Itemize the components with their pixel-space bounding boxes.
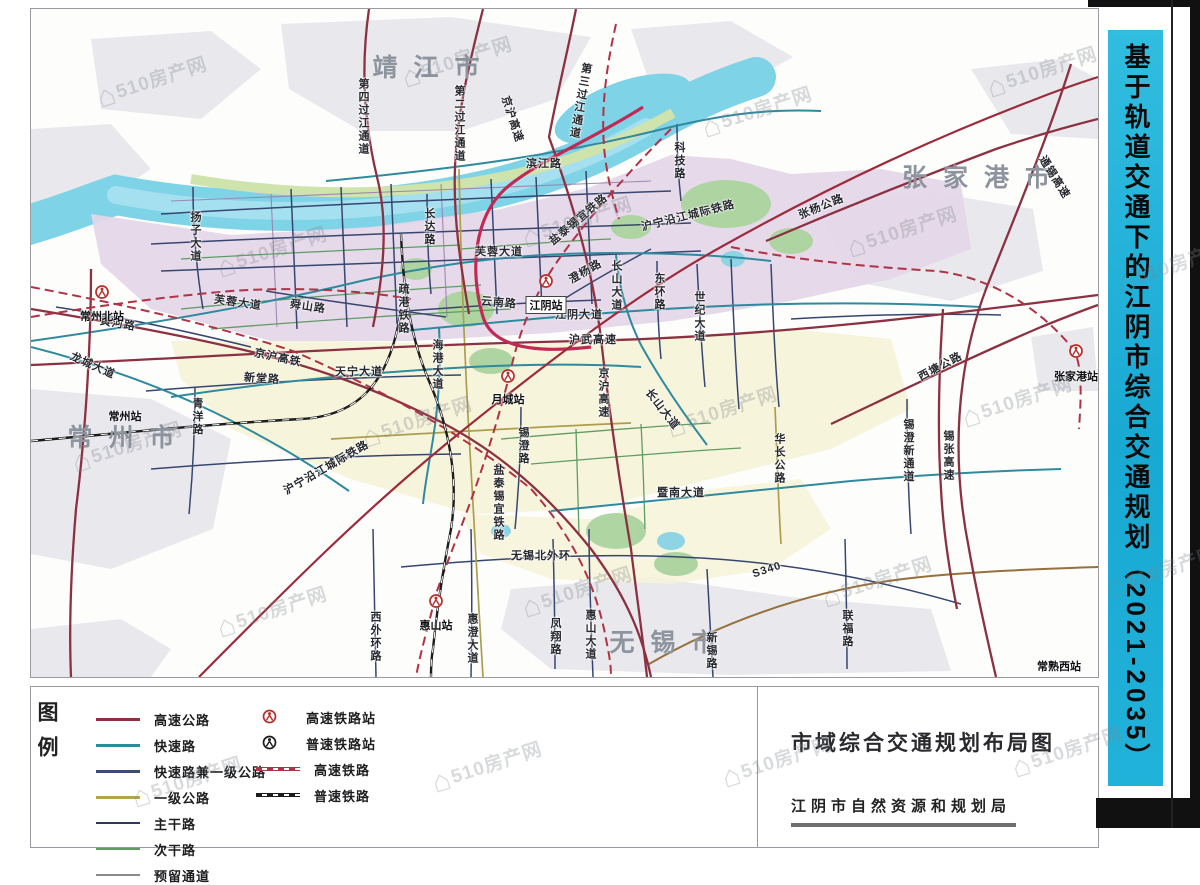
legend-item-label: 普速铁路站	[306, 734, 376, 753]
info-panel-agency: 江阴市自然资源和规划局	[791, 795, 1011, 816]
regular-rail-line-sample	[256, 793, 300, 797]
legend-line-sample	[96, 718, 140, 721]
legend-line-sample	[96, 796, 140, 799]
legend-road-item: 高速公路	[96, 711, 210, 727]
panel-divider	[757, 687, 758, 847]
legend-item-label: 快速路兼一级公路	[154, 762, 266, 781]
document-title: 基于轨道交通下的江阴市综合交通规划（2021-2035）	[1108, 43, 1163, 773]
legend-road-item: 一级公路	[96, 789, 210, 805]
legend-road-item: 预留通道	[96, 867, 210, 883]
bottom-panel: 图例 高速公路快速路快速路兼一级公路一级公路主干路次干路预留通道 高速铁路站普速…	[30, 686, 1099, 848]
legend-rail-item: 高速铁路	[256, 761, 370, 777]
legend-item-label: 快速路	[154, 736, 196, 755]
legend-item-label: 一级公路	[154, 788, 210, 807]
legend-rail-item: 普速铁路站	[256, 735, 376, 751]
legend-road-item: 快速路兼一级公路	[96, 763, 266, 779]
map-canvas: 靖江市张家港市常州市无锡市第四过江通道第二过江通道京沪高速第三过江通道滨江路科技…	[30, 8, 1099, 678]
legend-road-item: 主干路	[96, 815, 196, 831]
legend-item-label: 次干路	[154, 840, 196, 859]
map-artwork	[31, 9, 1098, 677]
legend-rail-item: 高速铁路站	[256, 709, 376, 725]
legend-line-sample	[96, 874, 140, 876]
rail-dash-pattern	[256, 768, 300, 770]
scan-edge-top	[1088, 0, 1200, 7]
legend-title: 图例	[49, 701, 75, 771]
scan-edge-corner	[1096, 798, 1200, 828]
legend-road-item: 次干路	[96, 841, 196, 857]
legend-road-item: 快速路	[96, 737, 196, 753]
legend-line-sample	[96, 744, 140, 747]
info-panel-title: 市域综合交通规划布局图	[791, 727, 1055, 757]
regular-rail-station-icon	[262, 735, 279, 752]
legend-item-label: 高速铁路	[314, 760, 370, 779]
legend-item-label: 高速铁路站	[306, 708, 376, 727]
rail-dash-pattern	[256, 794, 300, 796]
legend-item-label: 普速铁路	[314, 786, 370, 805]
hsr-station-icon	[262, 709, 279, 726]
legend-line-sample	[96, 848, 140, 850]
legend-line-sample	[96, 770, 140, 773]
legend-rail-item: 普速铁路	[256, 787, 370, 803]
scan-edge-line	[1171, 0, 1173, 828]
title-banner: 基于轨道交通下的江阴市综合交通规划（2021-2035）	[1108, 30, 1163, 786]
legend-item-label: 主干路	[154, 814, 196, 833]
legend-line-sample	[96, 822, 140, 824]
scan-edge-right	[1190, 0, 1200, 828]
hsr-line-sample	[256, 767, 300, 771]
legend-item-label: 高速公路	[154, 710, 210, 729]
clipped-text-line	[791, 823, 1016, 827]
legend-item-label: 预留通道	[154, 866, 210, 885]
